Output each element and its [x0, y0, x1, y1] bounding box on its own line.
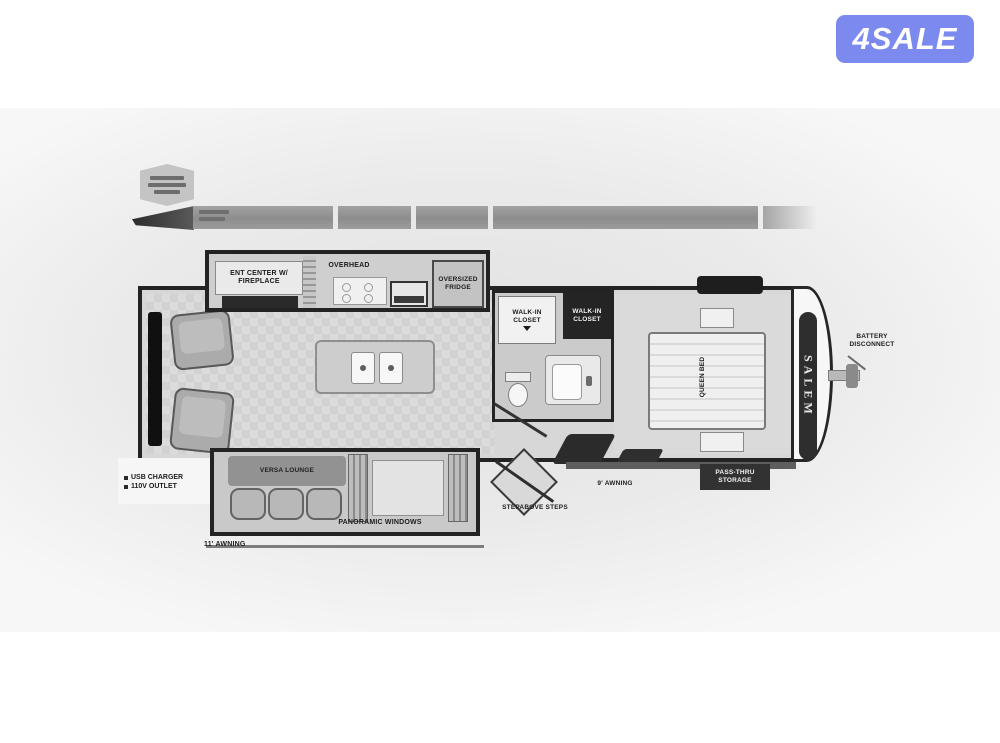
kitchen-island	[315, 340, 435, 394]
110v-outlet-text: 110V OUTLET	[131, 483, 177, 490]
drain	[388, 365, 394, 371]
dinette-bench	[348, 454, 368, 522]
walk-in-closet-left: WALK-IN CLOSET	[498, 296, 556, 344]
fireplace	[222, 296, 298, 308]
sofa-cushion	[306, 488, 342, 520]
recliner-chair	[169, 387, 235, 455]
panoramic-windows-label: PANORAMIC WINDOWS	[288, 519, 472, 527]
bullet-icon	[124, 485, 128, 489]
sofa-cushion	[268, 488, 304, 520]
refrigerator: OVERSIZED FRIDGE	[432, 260, 484, 308]
badge-text-line	[150, 176, 184, 180]
usb-charger-label: USB CHARGER	[124, 474, 216, 481]
bullet-icon	[124, 476, 128, 480]
battery-disconnect-switch	[846, 364, 858, 388]
nightstand	[700, 308, 734, 328]
walk-in-closet-left-label: WALK-IN CLOSET	[499, 309, 555, 325]
roof-segment	[763, 206, 817, 229]
sink-bowl	[379, 352, 403, 384]
roof-segment	[416, 206, 488, 229]
forsale-watermark-text: 4SALE	[853, 21, 958, 57]
vanity-sink	[552, 364, 582, 400]
rear-window	[148, 312, 162, 446]
queen-bed-label: QUEEN BED	[678, 352, 728, 402]
dinette-table	[372, 460, 444, 516]
roof-segment-text-line	[199, 217, 225, 221]
burner	[342, 283, 351, 292]
stepabove-steps-label: STEPABOVE STEPS	[492, 504, 578, 512]
burner	[342, 294, 351, 303]
cooktop	[333, 277, 387, 305]
roof-segment-text-line	[199, 210, 229, 214]
recliner-seat	[179, 396, 227, 438]
usb-charger-text: USB CHARGER	[131, 474, 183, 481]
bathroom-vanity	[545, 355, 601, 405]
nightstand	[700, 432, 744, 452]
roof-segment	[338, 206, 411, 229]
entertainment-center: ENT CENTER W/ FIREPLACE	[215, 261, 303, 295]
toilet-tank	[505, 372, 531, 382]
wheel	[616, 449, 663, 463]
awning-11ft-label: 11' AWNING	[204, 541, 288, 549]
badge-text-line	[154, 190, 180, 194]
110v-outlet-label: 110V OUTLET	[124, 483, 216, 490]
pantry-shelves	[303, 256, 316, 308]
recliner-chair	[169, 309, 235, 371]
oven-handle	[394, 296, 424, 303]
burner	[364, 283, 373, 292]
dinette-bench	[448, 454, 468, 522]
roof-segment	[193, 206, 333, 229]
pass-thru-storage: PASS-THRU STORAGE	[700, 464, 770, 490]
versa-lounge-sofa: VERSA LOUNGE	[228, 456, 346, 486]
roof-segment	[493, 206, 758, 229]
battery-disconnect-label: BATTERY DISCONNECT	[836, 333, 908, 349]
bedroom-tv	[697, 276, 763, 294]
walk-in-closet-right: WALK-IN CLOSET	[563, 293, 611, 339]
down-arrow-icon	[523, 326, 531, 331]
drain	[360, 365, 366, 371]
burner	[364, 294, 373, 303]
oven	[390, 281, 428, 307]
recliner-seat	[178, 318, 225, 354]
rear-outlet-labels: USB CHARGER 110V OUTLET	[124, 474, 216, 492]
certification-badge	[140, 164, 194, 206]
overhead-cabinet-label: OVERHEAD	[320, 262, 378, 270]
brand-lettering: SALEM	[799, 312, 817, 460]
sink-bowl	[351, 352, 375, 384]
toilet-bowl	[508, 383, 528, 407]
forsale-watermark-badge: 4SALE	[836, 15, 974, 63]
sofa-cushion	[230, 488, 266, 520]
badge-text-line	[148, 183, 186, 187]
awning-9ft-label: 9' AWNING	[580, 480, 650, 488]
faucet	[586, 376, 592, 386]
